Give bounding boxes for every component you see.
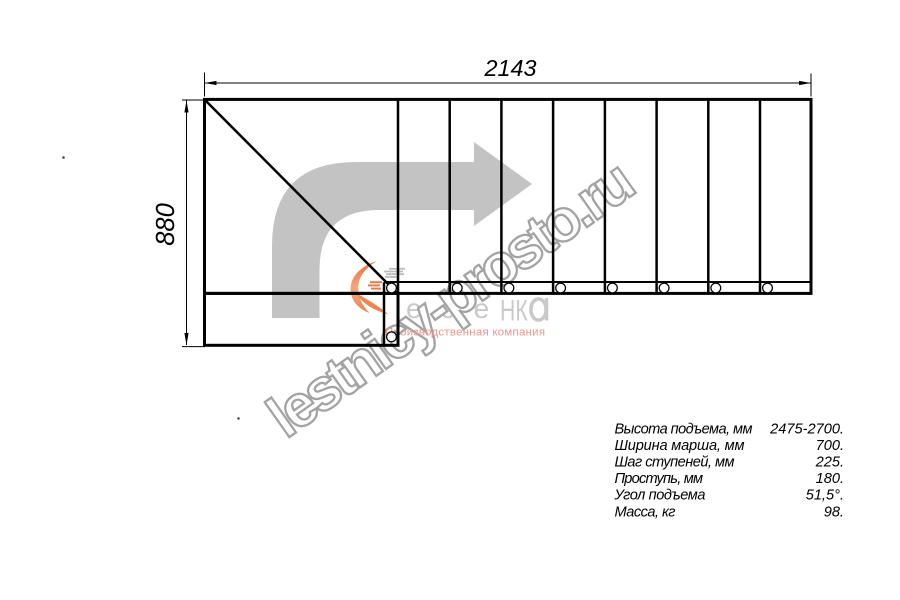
svg-text:Высота подъема, мм: Высота подъема, мм (615, 421, 753, 437)
svg-text:Шаг ступеней, мм: Шаг ступеней, мм (615, 455, 735, 471)
svg-text:2475-2700.: 2475-2700. (769, 421, 844, 437)
svg-text:51,5°.: 51,5°. (806, 488, 844, 504)
svg-text:Ширина марша, мм: Ширина марша, мм (615, 438, 745, 454)
svg-text:225.: 225. (815, 455, 844, 471)
svg-text:700.: 700. (816, 438, 844, 454)
svg-text:Угол подъема: Угол подъема (614, 488, 706, 504)
svg-text:98.: 98. (824, 504, 844, 520)
svg-text:Проступь, мм: Проступь, мм (615, 471, 704, 487)
svg-text:2143: 2143 (483, 55, 536, 81)
svg-text:Масса, кг: Масса, кг (615, 504, 676, 520)
svg-text:880: 880 (152, 203, 180, 246)
svg-text:180.: 180. (816, 471, 844, 487)
svg-text:Производственная компания: Производственная компания (385, 327, 545, 339)
